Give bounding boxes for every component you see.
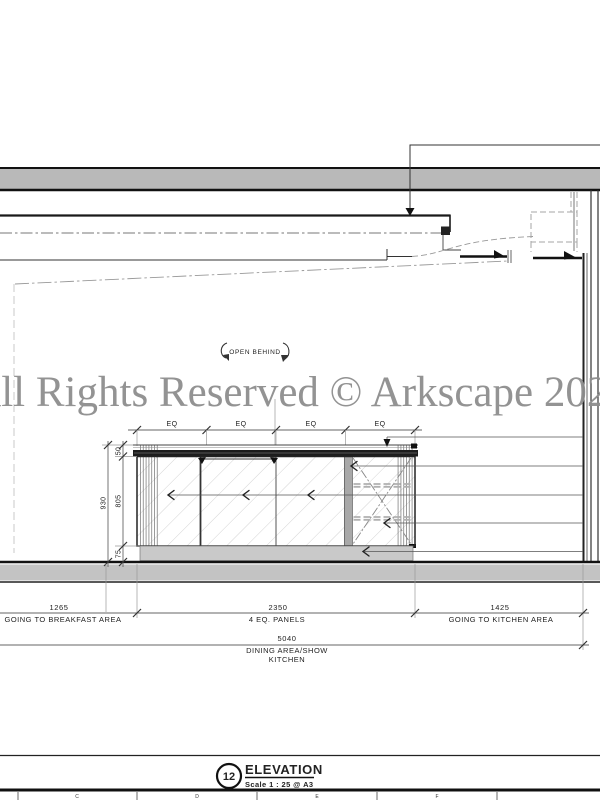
- open-behind-label: OPEN BEHIND: [229, 349, 280, 356]
- cove-hidden-curve: [412, 237, 533, 257]
- dim-counter-thickness: 50: [116, 447, 123, 456]
- bulkhead: [0, 215, 533, 261]
- curl-arrow-right-tip-icon: [281, 355, 289, 362]
- hood-hidden-outline: [531, 192, 577, 252]
- dim-breakfast-value: 1265: [49, 603, 68, 612]
- end-panel-left: [139, 445, 160, 546]
- countertop: [133, 444, 418, 457]
- drawing-title: ELEVATION: [245, 762, 323, 777]
- island-cabinet: EQ EQ EQ EQ: [128, 399, 583, 561]
- dim-plinth-height: 75: [116, 550, 123, 559]
- grid-letter: F: [435, 794, 438, 800]
- end-panel-right: [397, 445, 414, 546]
- ceiling-slab: [0, 168, 600, 190]
- down-arrow-icon: [384, 439, 391, 447]
- eq-label: EQ: [166, 421, 177, 428]
- curl-arrow-left-tip-icon: [223, 354, 229, 361]
- eq-label: EQ: [374, 421, 385, 428]
- ceiling-track-elements: [460, 192, 582, 263]
- dim-total-height: 930: [101, 497, 108, 510]
- grid-letter: E: [315, 794, 319, 800]
- dim-panels-value: 2350: [268, 603, 287, 612]
- detail-number: 12: [223, 771, 235, 783]
- dim-breakfast-label: GOING TO BREAKFAST AREA: [5, 615, 122, 624]
- dim-panels-label: 4 EQ. PANELS: [249, 615, 305, 624]
- open-behind-note: OPEN BEHIND: [221, 343, 289, 362]
- dim-overall-value: 5040: [277, 634, 296, 643]
- dim-overall-label-2: KITCHEN: [269, 655, 305, 664]
- watermark-text: All Rights Reserved © Arkscape 2023: [0, 369, 600, 416]
- sheet-grid-strip: C D E F: [18, 792, 497, 800]
- dim-overall-label-1: DINING AREA/SHOW: [246, 646, 328, 655]
- extension-lines: [137, 430, 415, 446]
- eq-label: EQ: [305, 421, 316, 428]
- vertical-dimensions: 930 50 805 75: [101, 441, 141, 567]
- bulkhead-reveal-detail: [441, 227, 450, 236]
- grid-letter: D: [195, 794, 199, 800]
- plinth: [140, 546, 413, 561]
- title-block: 12 ELEVATION Scale 1 : 25 @ A3: [0, 756, 600, 791]
- eq-label: EQ: [235, 421, 246, 428]
- dim-kitchen-value: 1425: [490, 603, 509, 612]
- grid-letter: C: [75, 794, 79, 800]
- dim-door-height: 805: [116, 495, 123, 508]
- drawing-scale: Scale 1 : 25 @ A3: [245, 780, 313, 789]
- elevation-drawing-sheet: OPEN BEHIND All Rights Reserved © Arksca…: [0, 0, 600, 800]
- floor-slab: [0, 562, 600, 582]
- dim-kitchen-label: GOING TO KITCHEN AREA: [449, 615, 554, 624]
- elevation-drawing: OPEN BEHIND All Rights Reserved © Arksca…: [0, 0, 600, 800]
